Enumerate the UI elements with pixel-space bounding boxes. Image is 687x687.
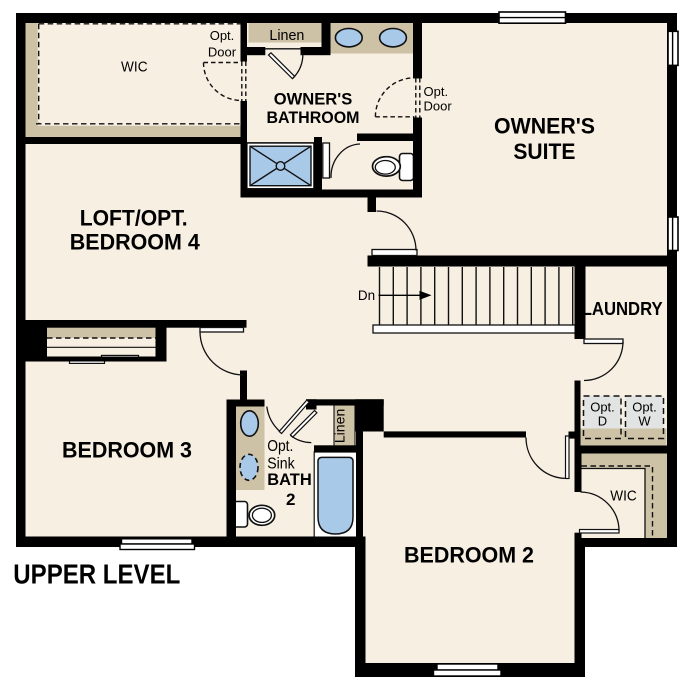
svg-text:Opt.: Opt. [424, 84, 449, 99]
svg-text:BATH: BATH [267, 470, 312, 489]
svg-text:SUITE: SUITE [513, 139, 575, 164]
svg-text:LAUNDRY: LAUNDRY [582, 299, 663, 319]
svg-text:LOFT/OPT.: LOFT/OPT. [80, 206, 188, 231]
svg-text:WIC: WIC [121, 59, 148, 76]
svg-text:UPPER LEVEL: UPPER LEVEL [13, 559, 180, 590]
svg-text:OWNER'S: OWNER'S [494, 114, 595, 139]
svg-text:BEDROOM 4: BEDROOM 4 [70, 230, 201, 255]
svg-text:2: 2 [286, 490, 295, 509]
svg-text:BEDROOM 2: BEDROOM 2 [404, 543, 534, 568]
svg-text:Door: Door [424, 98, 453, 113]
svg-text:Linen: Linen [331, 409, 347, 444]
svg-text:D: D [598, 413, 607, 428]
svg-text:Door: Door [208, 45, 237, 60]
svg-text:W: W [638, 413, 651, 428]
svg-text:Linen: Linen [269, 27, 304, 44]
svg-text:Opt.: Opt. [210, 28, 235, 43]
svg-text:BEDROOM 3: BEDROOM 3 [62, 437, 192, 462]
svg-text:BATHROOM: BATHROOM [267, 108, 360, 127]
svg-text:Opt.: Opt. [590, 399, 615, 414]
svg-text:Opt.: Opt. [267, 438, 293, 455]
svg-text:Opt.: Opt. [632, 399, 657, 414]
svg-text:Dn: Dn [358, 288, 375, 303]
svg-text:WIC: WIC [610, 488, 637, 505]
svg-text:OWNER'S: OWNER'S [274, 90, 353, 109]
